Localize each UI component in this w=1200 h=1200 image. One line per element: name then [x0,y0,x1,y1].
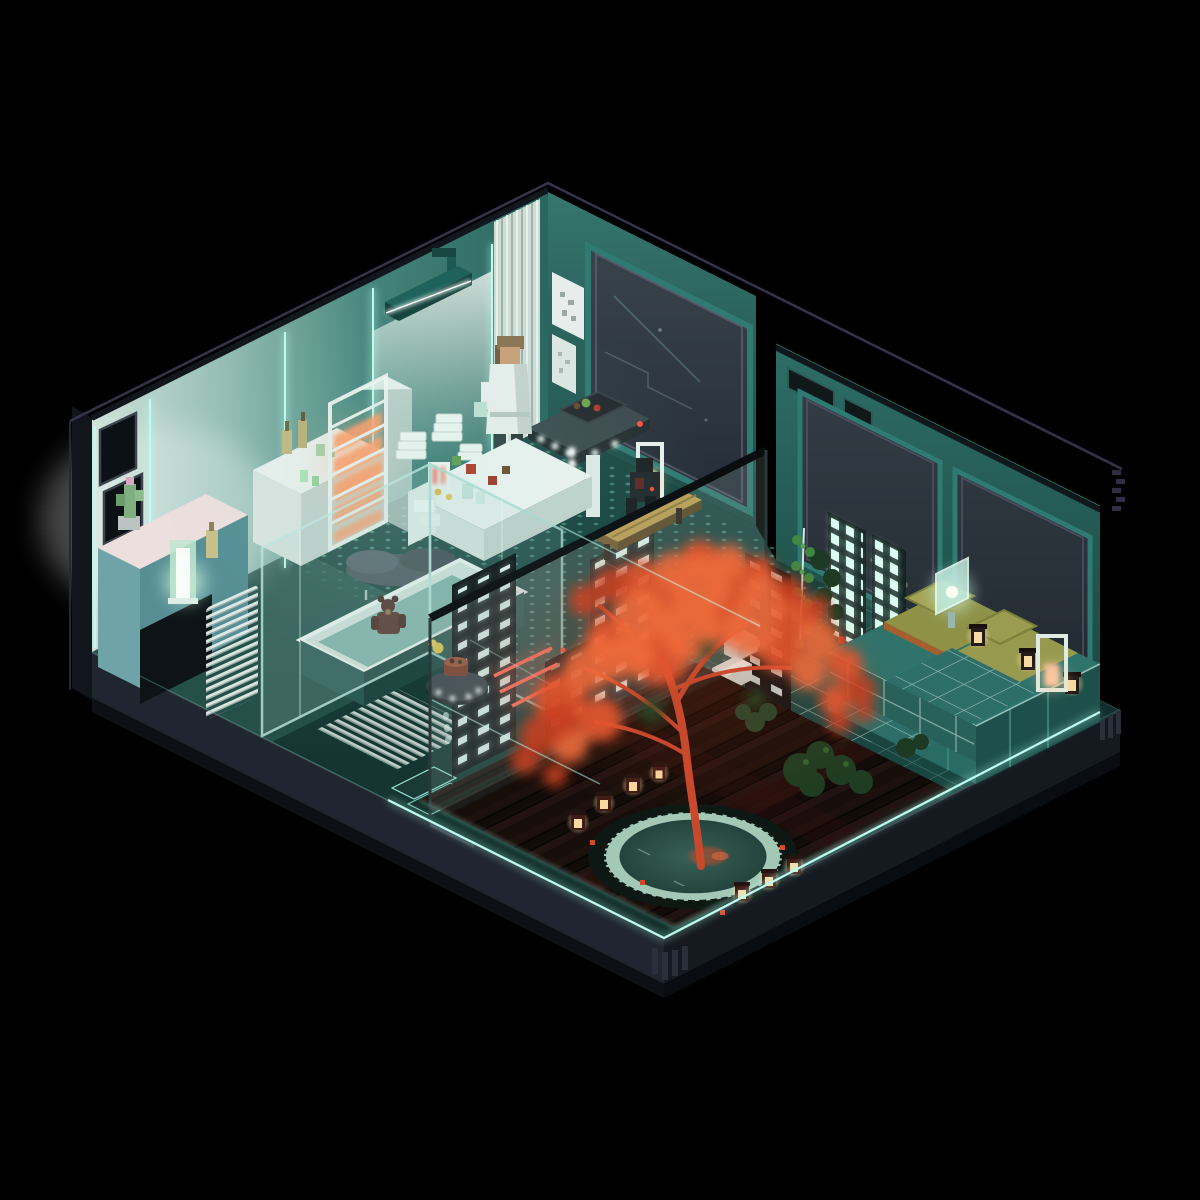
diorama-canvas [0,0,1200,1200]
voxel-room-artwork [0,0,1200,1200]
cyan-ambient-glow [150,290,710,670]
